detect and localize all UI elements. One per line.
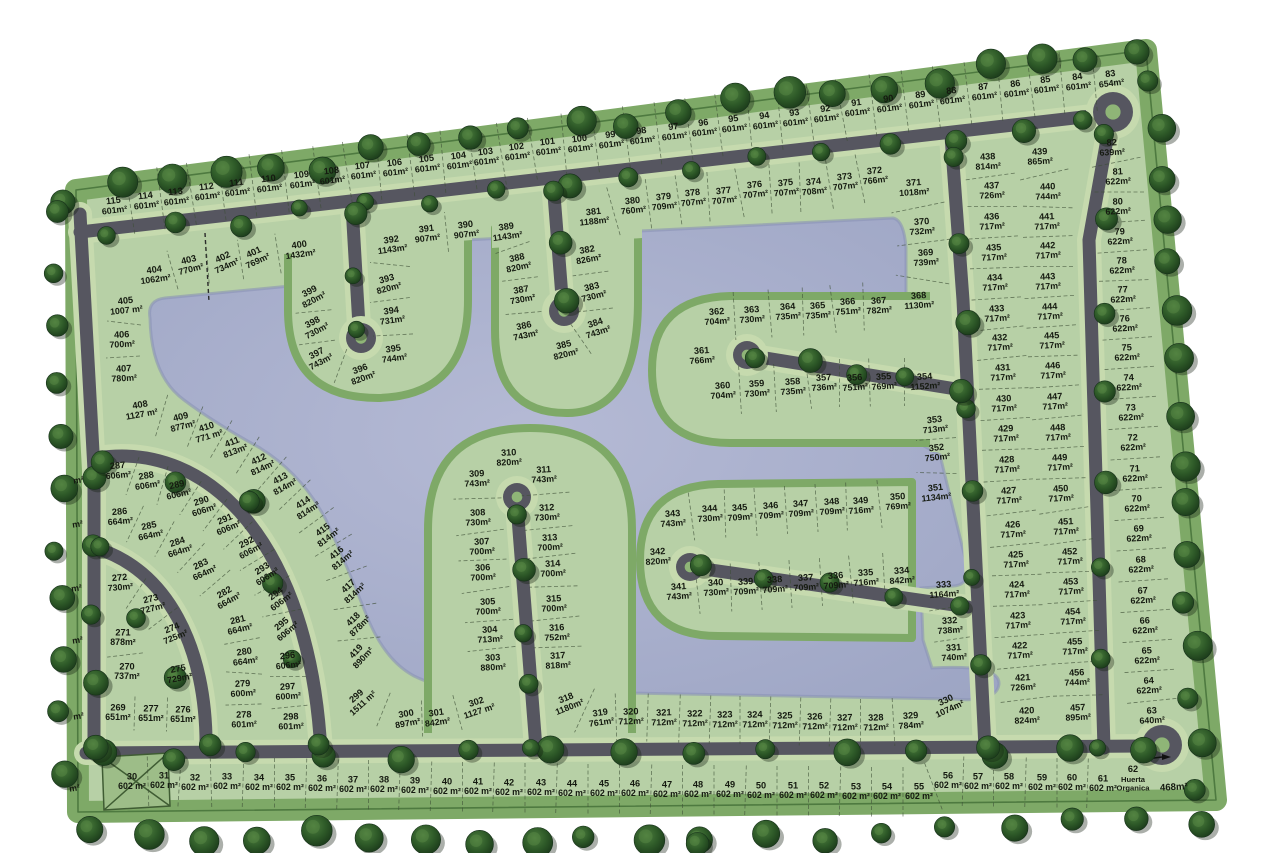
- clipped-lot-label: m²: [72, 518, 84, 529]
- clipped-lot-label: m²: [71, 582, 83, 593]
- site-plan-canvas: 115601m²114601m²113601m²112601m²111601m²…: [0, 0, 1280, 853]
- clipped-lot-label: m²: [69, 782, 81, 793]
- lot-62-area: 468m²: [1160, 781, 1188, 793]
- subdivision-map: 115601m²114601m²113601m²112601m²111601m²…: [0, 0, 1280, 853]
- clipped-lot-label: m²: [73, 710, 85, 721]
- clipped-lot-label: m²: [72, 634, 84, 645]
- clipped-lot-label: m²: [73, 474, 85, 485]
